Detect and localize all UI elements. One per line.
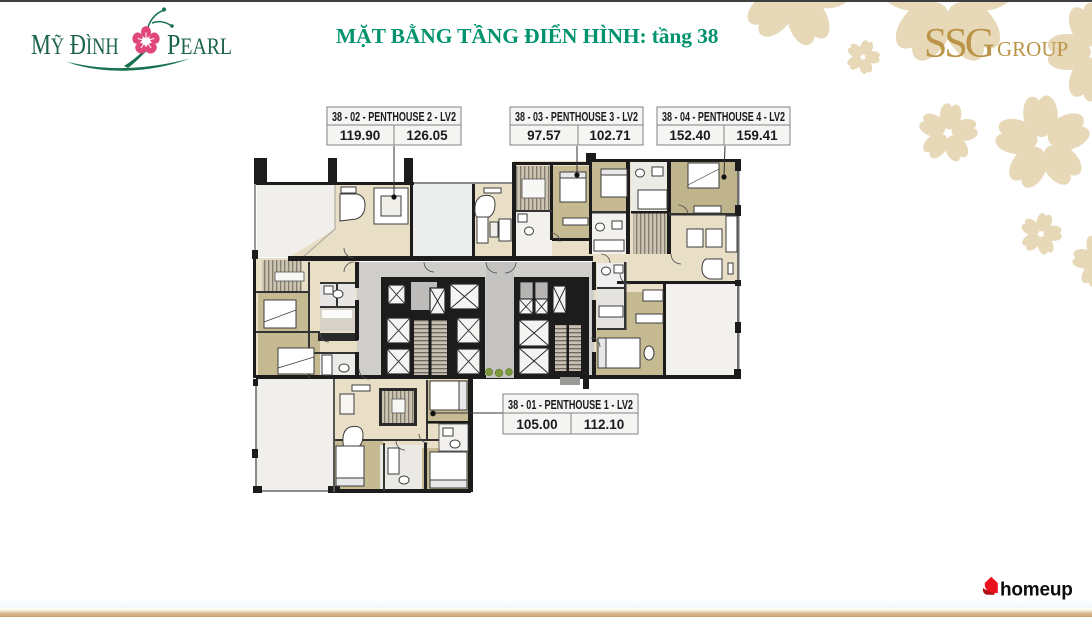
svg-text:38 - 04 - PENTHOUSE 4 - LV2: 38 - 04 - PENTHOUSE 4 - LV2 xyxy=(662,109,785,124)
svg-text:105.00: 105.00 xyxy=(516,417,557,432)
svg-text:97.57: 97.57 xyxy=(527,128,561,143)
svg-text:152.40: 152.40 xyxy=(669,128,710,143)
svg-text:112.10: 112.10 xyxy=(584,417,625,432)
svg-text:38 - 01 - PENTHOUSE 1 - LV2: 38 - 01 - PENTHOUSE 1 - LV2 xyxy=(508,397,633,412)
svg-text:102.71: 102.71 xyxy=(589,128,631,143)
svg-text:38 - 03 - PENTHOUSE 3 - LV2: 38 - 03 - PENTHOUSE 3 - LV2 xyxy=(515,109,638,124)
svg-text:159.41: 159.41 xyxy=(736,128,778,143)
svg-text:119.90: 119.90 xyxy=(340,128,381,143)
svg-text:38 - 02 - PENTHOUSE 2 - LV2: 38 - 02 - PENTHOUSE 2 - LV2 xyxy=(332,109,456,124)
svg-text:homeup: homeup xyxy=(1000,580,1073,601)
svg-text:126.05: 126.05 xyxy=(406,128,448,143)
